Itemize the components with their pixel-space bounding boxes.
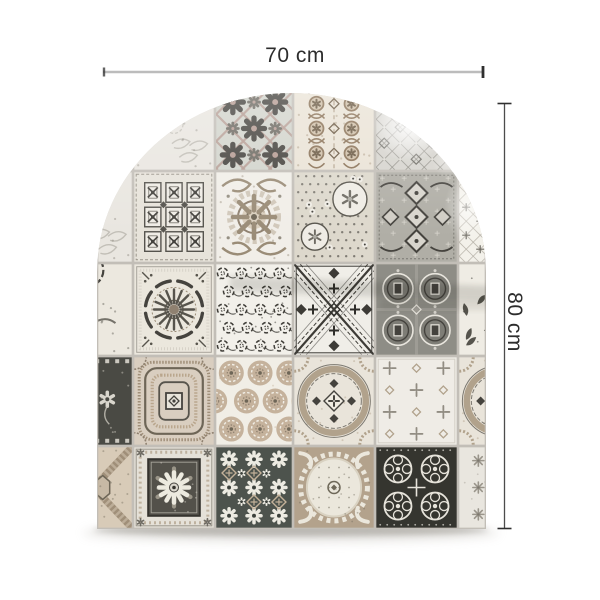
glare-highlight-2 xyxy=(444,174,492,242)
tile-3-5 xyxy=(459,357,536,445)
tile-4-1 xyxy=(134,447,214,528)
tile-2-3 xyxy=(282,264,386,355)
product-canvas: 70 cm 80 cm xyxy=(0,0,600,600)
tile-4-2 xyxy=(216,447,292,528)
glare-highlight xyxy=(371,86,447,162)
tile-3-0 xyxy=(55,357,132,447)
product-dimension-image: 70 cm 80 cm xyxy=(0,0,600,600)
tile-0-0 xyxy=(58,87,132,170)
tile-3-1 xyxy=(134,357,214,445)
reflection-band-2 xyxy=(380,300,492,310)
tile-4-3 xyxy=(294,447,374,528)
tile-4-5 xyxy=(459,447,532,528)
width-dimension-label: 70 cm xyxy=(265,44,325,67)
tile-4-0 xyxy=(55,447,132,528)
tile-4-4 xyxy=(376,447,457,528)
tile-2-1 xyxy=(134,264,214,355)
tile-2-0 xyxy=(58,254,132,355)
height-dimension: 80 cm xyxy=(498,103,527,529)
height-dimension-label: 80 cm xyxy=(503,292,526,352)
tile-3-3 xyxy=(294,357,374,445)
tile-3-4 xyxy=(376,357,457,445)
width-dimension: 70 cm xyxy=(103,44,484,78)
glare-highlight-3 xyxy=(432,144,466,178)
top-light-wash xyxy=(97,88,486,238)
